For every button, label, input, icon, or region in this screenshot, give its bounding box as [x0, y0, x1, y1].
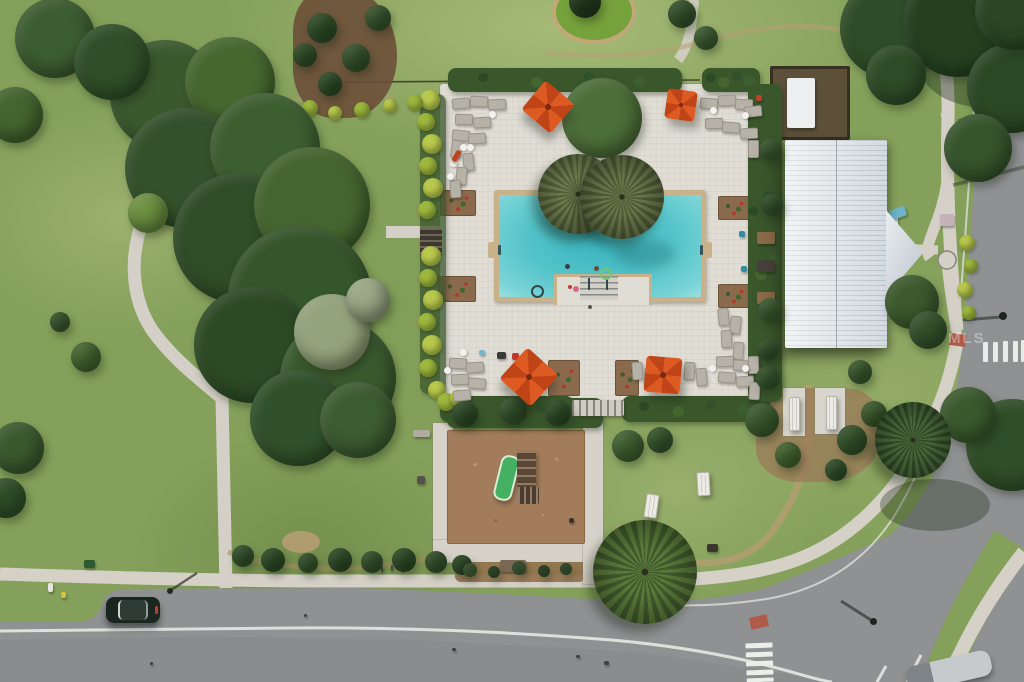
tree-canopy — [298, 553, 318, 573]
playground-structure-base — [518, 487, 539, 504]
lounge-chair — [488, 99, 506, 111]
lounge-chair — [716, 356, 735, 368]
lounge-chair — [631, 362, 643, 381]
playground-mulch — [447, 430, 585, 544]
lime-shrub — [419, 359, 437, 377]
lime-shrub — [422, 335, 442, 355]
lime-shrub — [354, 102, 370, 118]
lime-shrub — [420, 90, 440, 110]
lounge-chair — [468, 377, 487, 390]
palm-tree — [593, 520, 697, 624]
tree-canopy — [560, 563, 572, 575]
lounge-chair — [722, 121, 741, 134]
deck-item — [604, 661, 609, 665]
swimmer-or-float — [600, 268, 612, 280]
tree-canopy — [825, 459, 847, 481]
pool-ladder-pad — [488, 242, 498, 258]
side-table — [447, 173, 454, 180]
lounge-chair — [740, 128, 759, 140]
tree-canopy — [756, 366, 780, 390]
deck-item — [497, 352, 506, 359]
pool-gate-arbor — [572, 400, 624, 416]
deck-item — [757, 260, 775, 272]
lounge-chair — [453, 389, 472, 402]
picnic-table — [826, 396, 837, 430]
deck-planter — [718, 284, 750, 308]
lime-shrub — [419, 269, 437, 287]
lounge-chair — [466, 361, 485, 373]
lime-shrub — [964, 259, 978, 273]
tree-canopy — [612, 430, 644, 462]
deck-item — [569, 518, 574, 523]
tree-canopy — [745, 403, 779, 437]
lounge-chair — [455, 114, 473, 126]
tree-canopy — [757, 339, 779, 361]
paver-medallion — [938, 251, 956, 269]
tree-canopy — [452, 401, 478, 427]
tree-canopy — [128, 193, 168, 233]
pool-steps — [580, 276, 618, 300]
lime-shrub — [423, 290, 443, 310]
lounge-chair — [449, 180, 461, 199]
tree-canopy — [361, 551, 383, 573]
side-table — [742, 365, 749, 372]
palm-tree — [580, 155, 664, 239]
lounge-chair — [717, 308, 730, 327]
pool-ladder — [700, 245, 703, 255]
aerial-photo-community-pool: MLS — [0, 0, 1024, 682]
side-table — [444, 367, 451, 374]
tree-canopy — [488, 566, 500, 578]
tree-canopy — [425, 551, 447, 573]
hedge-row — [448, 68, 682, 92]
street-lamp — [870, 618, 877, 625]
tree-canopy — [837, 425, 867, 455]
lounge-chair — [683, 362, 695, 381]
tree-canopy — [71, 342, 101, 372]
deck-item — [61, 592, 66, 598]
lounge-chair — [470, 96, 489, 108]
swimmer-or-float — [588, 305, 592, 309]
pool-handrail — [588, 278, 590, 290]
side-table — [467, 144, 474, 151]
tree-canopy — [775, 442, 801, 468]
deck-item — [576, 655, 580, 658]
lime-shrub — [959, 235, 975, 251]
street-lamp — [167, 588, 173, 594]
deck-item — [739, 231, 745, 237]
deck-item — [417, 476, 425, 484]
dirt-oval-patch — [282, 531, 320, 553]
deck-item — [707, 544, 718, 552]
deck-planter — [718, 196, 750, 220]
lounge-chair — [748, 140, 759, 158]
tree-canopy — [307, 13, 337, 43]
tree-shadow-road-curve — [880, 479, 990, 531]
lime-shrub — [328, 106, 342, 120]
lounge-chair — [718, 95, 737, 107]
deck-item — [452, 648, 456, 651]
deck-item — [757, 232, 775, 244]
lime-shrub — [421, 246, 441, 266]
lounge-chair — [451, 374, 469, 386]
tree-canopy — [346, 278, 390, 322]
side-table — [460, 144, 467, 151]
playground-structure — [517, 451, 536, 487]
deck-item — [741, 266, 747, 272]
lounge-chair — [732, 342, 744, 361]
street-lamp — [999, 312, 1007, 320]
side-table — [460, 349, 467, 356]
umbrella — [643, 355, 682, 394]
parked-car — [106, 597, 160, 623]
picnic-table — [696, 472, 710, 497]
tree-canopy — [499, 397, 527, 425]
pool-ladder-pad — [702, 242, 712, 258]
pool-ladder — [498, 245, 501, 255]
lime-shrub — [957, 282, 973, 298]
tree-canopy — [512, 561, 526, 575]
tree-canopy — [848, 360, 872, 384]
tree-canopy — [545, 400, 571, 426]
lounge-chair — [718, 371, 737, 384]
ac-equipment — [787, 78, 815, 128]
deck-item — [940, 214, 954, 226]
tree-canopy — [293, 43, 317, 67]
tree-canopy — [866, 45, 926, 105]
tree-canopy — [538, 565, 550, 577]
tree-canopy — [909, 311, 947, 349]
tree-canopy — [944, 114, 1012, 182]
lime-shrub — [418, 201, 436, 219]
tree-canopy — [232, 545, 254, 567]
deck-item — [48, 583, 53, 592]
tree-canopy — [759, 139, 781, 161]
side-table — [709, 365, 716, 372]
tree-canopy — [562, 78, 642, 158]
swimmer-or-float — [531, 285, 544, 298]
lounge-chair — [705, 118, 723, 130]
lounge-chair — [473, 116, 492, 128]
water-shadow — [615, 240, 675, 268]
lounge-chair — [721, 330, 733, 349]
lime-shrub — [383, 99, 397, 113]
swimmer-or-float — [573, 286, 579, 292]
side-table — [742, 112, 749, 119]
tree-canopy — [261, 548, 285, 572]
lounge-chair — [452, 97, 471, 110]
tree-canopy — [761, 194, 783, 216]
deck-item — [84, 560, 95, 568]
deck-item — [304, 614, 307, 617]
deck-item — [413, 430, 430, 437]
lime-shrub — [962, 306, 976, 320]
tree-canopy — [647, 427, 673, 453]
clubhouse-roof — [785, 140, 887, 348]
tree-canopy — [74, 24, 150, 100]
lounge-chair — [468, 133, 487, 145]
lime-shrub — [423, 178, 443, 198]
tree-canopy — [320, 382, 396, 458]
swimmer-or-float — [565, 264, 570, 269]
tree-canopy — [694, 26, 718, 50]
deck-item — [150, 662, 153, 665]
mls-watermark: MLS — [948, 330, 986, 347]
side-table — [710, 107, 717, 114]
tree-canopy — [668, 0, 696, 28]
tree-canopy — [463, 563, 477, 577]
lime-shrub — [422, 134, 442, 154]
tree-canopy — [318, 72, 342, 96]
picnic-table — [789, 397, 800, 431]
deck-item — [479, 350, 485, 355]
tree-canopy — [50, 312, 70, 332]
tree-canopy — [365, 5, 391, 31]
lounge-chair — [695, 368, 708, 387]
palm-tree — [875, 402, 951, 478]
umbrella — [664, 88, 698, 122]
tree-canopy — [342, 44, 370, 72]
tree-canopy — [392, 548, 416, 572]
lime-shrub — [417, 113, 435, 131]
lounge-chair — [449, 358, 468, 370]
tree-canopy — [328, 548, 352, 572]
swimmer-or-float — [594, 266, 599, 271]
lime-shrub — [418, 313, 436, 331]
swimmer-or-float — [568, 285, 572, 289]
deck-item — [756, 95, 762, 101]
lime-shrub — [407, 95, 423, 111]
side-table — [489, 111, 496, 118]
tree-canopy — [758, 298, 782, 322]
lime-shrub — [419, 157, 437, 175]
